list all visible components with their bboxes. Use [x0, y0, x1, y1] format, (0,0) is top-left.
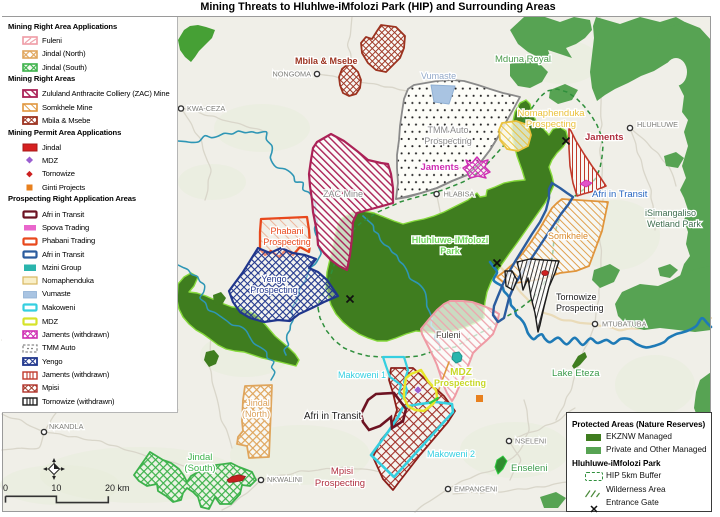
svg-text:Lake Eteza: Lake Eteza [552, 368, 600, 379]
svg-text:0: 0 [3, 483, 8, 493]
svg-text:10: 10 [51, 483, 61, 493]
svg-text:Prospecting: Prospecting [315, 478, 365, 489]
svg-text:TMM Auto: TMM Auto [427, 125, 468, 135]
svg-text:Afri in Transit: Afri in Transit [592, 189, 648, 200]
svg-text:Fuleni: Fuleni [436, 330, 461, 340]
svg-text:Prospecting: Prospecting [424, 136, 472, 146]
svg-text:EMPANGENI: EMPANGENI [454, 485, 497, 494]
svg-text:HLABISA: HLABISA [444, 190, 475, 199]
svg-text:KWA-CEZA: KWA-CEZA [187, 104, 225, 113]
svg-text:Phabani: Phabani [270, 226, 303, 236]
svg-text:Mbila & Msebe: Mbila & Msebe [295, 56, 358, 66]
svg-text:Nomaphenduka: Nomaphenduka [517, 108, 585, 119]
svg-text:Prospecting: Prospecting [556, 303, 604, 313]
svg-text:NSELENI: NSELENI [515, 437, 546, 446]
svg-text:Tornowize: Tornowize [556, 292, 597, 302]
svg-text:Makoweni 2: Makoweni 2 [427, 449, 475, 459]
svg-text:NKANDLA: NKANDLA [49, 422, 84, 431]
svg-text:Jindal: Jindal [246, 398, 270, 408]
svg-text:Enseleni: Enseleni [511, 463, 547, 474]
svg-text:Mpisi: Mpisi [331, 466, 353, 477]
svg-text:Yengo: Yengo [261, 274, 286, 284]
svg-text:Prospecting: Prospecting [263, 237, 311, 247]
svg-text:Prospecting: Prospecting [250, 285, 298, 295]
svg-text:Jaments: Jaments [585, 132, 624, 143]
svg-text:iSimangaliso: iSimangaliso [645, 208, 696, 218]
svg-text:Prospecting: Prospecting [434, 378, 486, 388]
svg-text:20 km: 20 km [105, 483, 130, 493]
svg-text:Wetland Park: Wetland Park [647, 219, 701, 229]
svg-text:Hluhluwe-iMfolozi: Hluhluwe-iMfolozi [412, 235, 489, 245]
svg-text:Park: Park [440, 246, 461, 256]
svg-text:(South): (South) [184, 463, 215, 474]
svg-text:HLUHLUWE: HLUHLUWE [637, 120, 678, 129]
svg-text:(North): (North) [242, 409, 270, 419]
svg-text:Mduna Royal: Mduna Royal [495, 54, 551, 65]
svg-text:MDZ: MDZ [450, 367, 472, 378]
svg-text:Afri in Transit: Afri in Transit [304, 411, 361, 422]
svg-text:Somkhele: Somkhele [548, 231, 588, 241]
svg-text:NKWALINI: NKWALINI [267, 475, 302, 484]
svg-text:ZAC Mine: ZAC Mine [323, 189, 363, 199]
svg-text:Jaments: Jaments [420, 162, 459, 173]
svg-text:Makoweni 1: Makoweni 1 [338, 370, 386, 380]
svg-text:Jindal: Jindal [188, 452, 213, 463]
svg-text:Prospecting: Prospecting [526, 119, 576, 130]
svg-text:NONGOMA: NONGOMA [272, 70, 311, 79]
svg-text:Vumaste: Vumaste [421, 71, 456, 81]
svg-text:MTUBATUBA: MTUBATUBA [602, 320, 647, 329]
